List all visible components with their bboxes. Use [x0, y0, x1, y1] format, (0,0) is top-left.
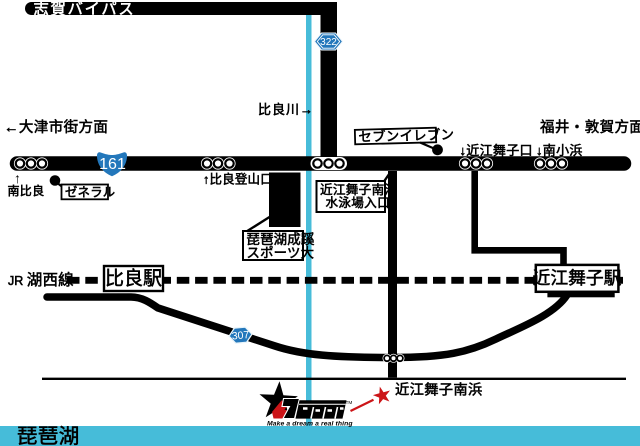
svg-text:近江舞子駅: 近江舞子駅 [533, 268, 622, 288]
svg-text:↓近江舞子口: ↓近江舞子口 [460, 143, 533, 158]
svg-text:307: 307 [231, 329, 250, 342]
svg-text:161: 161 [99, 156, 126, 173]
svg-text:志賀バイパス: 志賀バイパス [34, 1, 136, 18]
svg-text:セブンイレブン: セブンイレブン [358, 126, 454, 145]
svg-text:322: 322 [320, 37, 337, 48]
svg-text:水泳場入口: 水泳場入口 [326, 196, 390, 210]
svg-text:↓南小浜: ↓南小浜 [536, 143, 583, 158]
svg-text:福井・敦賀方面→: 福井・敦賀方面→ [540, 119, 640, 136]
svg-text:南比良: 南比良 [8, 183, 45, 198]
svg-text:比良駅: 比良駅 [105, 268, 162, 290]
svg-text:琵琶湖: 琵琶湖 [17, 425, 80, 446]
svg-text:JR 湖西線: JR 湖西線 [8, 271, 74, 289]
svg-text:スポーツ大: スポーツ大 [247, 246, 315, 261]
svg-text:比良川→: 比良川→ [258, 102, 314, 117]
svg-text:Make a dream a real thing: Make a dream a real thing [267, 421, 353, 428]
svg-text:近江舞子南浜: 近江舞子南浜 [395, 381, 483, 398]
svg-text:近江舞子南浜: 近江舞子南浜 [320, 182, 397, 197]
svg-text:←大津市街方面: ←大津市街方面 [4, 119, 108, 136]
svg-text:TM: TM [346, 400, 353, 406]
svg-text:↑比良登山口: ↑比良登山口 [203, 172, 273, 187]
svg-text:ゼネラル: ゼネラル [65, 186, 115, 200]
